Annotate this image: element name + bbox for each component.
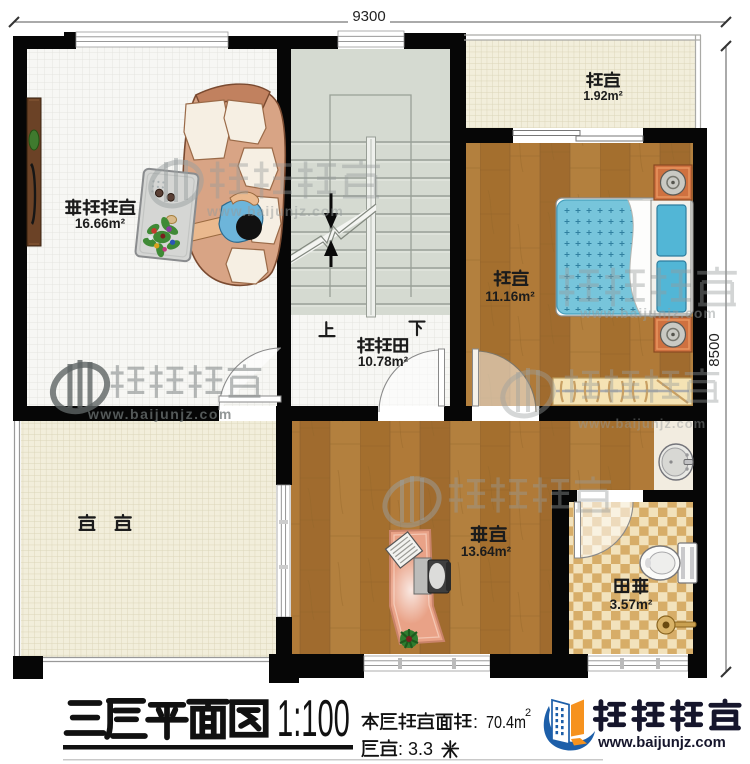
svg-text:www.baijunjz.com: www.baijunjz.com: [579, 305, 717, 321]
svg-text:11.16m²: 11.16m²: [485, 289, 535, 304]
svg-text:8500: 8500: [706, 333, 723, 366]
svg-text:1.92m²: 1.92m²: [583, 89, 623, 103]
svg-text:16.66m²: 16.66m²: [75, 216, 126, 231]
svg-text:70.4m: 70.4m: [486, 713, 526, 733]
svg-text:: 3.3: : 3.3: [398, 739, 433, 759]
svg-text:www.baijunjz.com: www.baijunjz.com: [597, 735, 726, 751]
svg-text:www.baijunjz.com: www.baijunjz.com: [87, 406, 233, 422]
svg-text:9300: 9300: [352, 8, 385, 25]
svg-text:3.57m²: 3.57m²: [610, 597, 653, 612]
svg-text:10.78m²: 10.78m²: [358, 354, 409, 369]
svg-text:www.baijunjz.com: www.baijunjz.com: [206, 203, 344, 219]
svg-text:13.64m²: 13.64m²: [461, 544, 512, 559]
svg-text::: :: [473, 712, 478, 732]
svg-text:www.baijunjz.com: www.baijunjz.com: [577, 416, 706, 431]
svg-text:1:100: 1:100: [277, 689, 350, 747]
svg-text:2: 2: [525, 707, 531, 719]
